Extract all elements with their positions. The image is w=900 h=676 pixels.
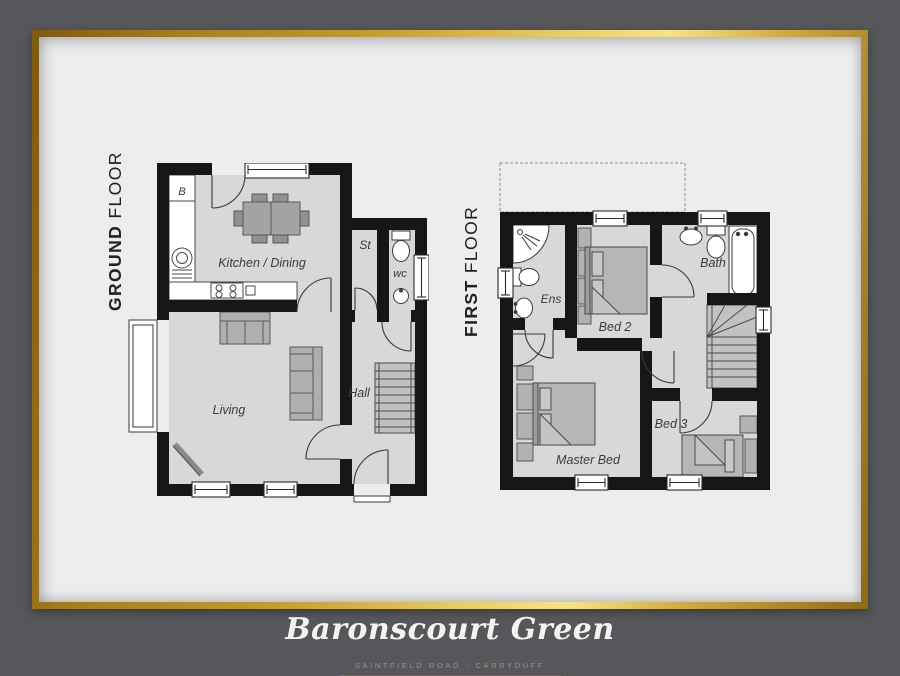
ground-floor-plan: B	[127, 163, 429, 503]
first-floor-plan: Ens Bed 2 Bath Master Bed Bed 3	[495, 162, 780, 507]
room-label-bed2: Bed 2	[599, 320, 632, 334]
stairs-icon	[707, 305, 757, 388]
first-floor-title-primary: FIRST	[461, 279, 481, 337]
ground-floor-title: GROUND FLOOR	[105, 159, 126, 311]
ground-floor-title-primary: GROUND	[105, 225, 125, 311]
room-label-hall: Hall	[348, 386, 371, 400]
room-label-living: Living	[213, 403, 246, 417]
boiler-cupboard: B	[178, 186, 185, 198]
poster-background: { "poster": { "colors": { "background": …	[0, 0, 900, 675]
sofa-icon	[290, 347, 322, 420]
development-title: Baronscourt Green	[0, 612, 900, 647]
room-label-bed3: Bed 3	[655, 417, 688, 431]
sink-icon	[394, 289, 409, 304]
toilet-icon	[392, 231, 410, 262]
gold-frame: GROUND FLOOR FIRST FLOOR B	[32, 30, 868, 609]
development-subtitle-wrap: SAINTFIELD ROAD - CARRYDUFF	[0, 655, 900, 676]
room-label-master-bed: Master Bed	[556, 453, 621, 467]
room-label-kitchen-dining: Kitchen / Dining	[218, 256, 306, 270]
double-bed-icon	[585, 247, 647, 314]
bathtub-icon	[729, 226, 757, 300]
plan-panel: GROUND FLOOR FIRST FLOOR B	[39, 37, 861, 602]
front-door-threshold	[354, 496, 390, 502]
first-floor-title-secondary: FLOOR	[461, 206, 481, 273]
room-label-store: St	[359, 238, 371, 252]
room-label-ensuite: Ens	[541, 292, 562, 306]
bay-window-icon	[129, 320, 157, 432]
first-floor-title: FIRST FLOOR	[461, 205, 482, 337]
development-subtitle: SAINTFIELD ROAD - CARRYDUFF	[339, 661, 561, 676]
single-bed-icon	[682, 435, 743, 477]
stairs-icon	[375, 363, 415, 433]
toilet-icon	[513, 268, 539, 286]
room-label-wc: wc	[393, 268, 407, 280]
double-bed-icon	[533, 383, 595, 445]
wardrobe-icon	[517, 366, 533, 461]
room-label-bath: Bath	[700, 256, 726, 270]
room-label-boiler: B	[178, 186, 185, 198]
toilet-icon	[707, 226, 725, 258]
roof-outline	[500, 163, 685, 212]
sofa-icon	[220, 312, 270, 344]
ground-floor-title-secondary: FLOOR	[105, 151, 125, 218]
